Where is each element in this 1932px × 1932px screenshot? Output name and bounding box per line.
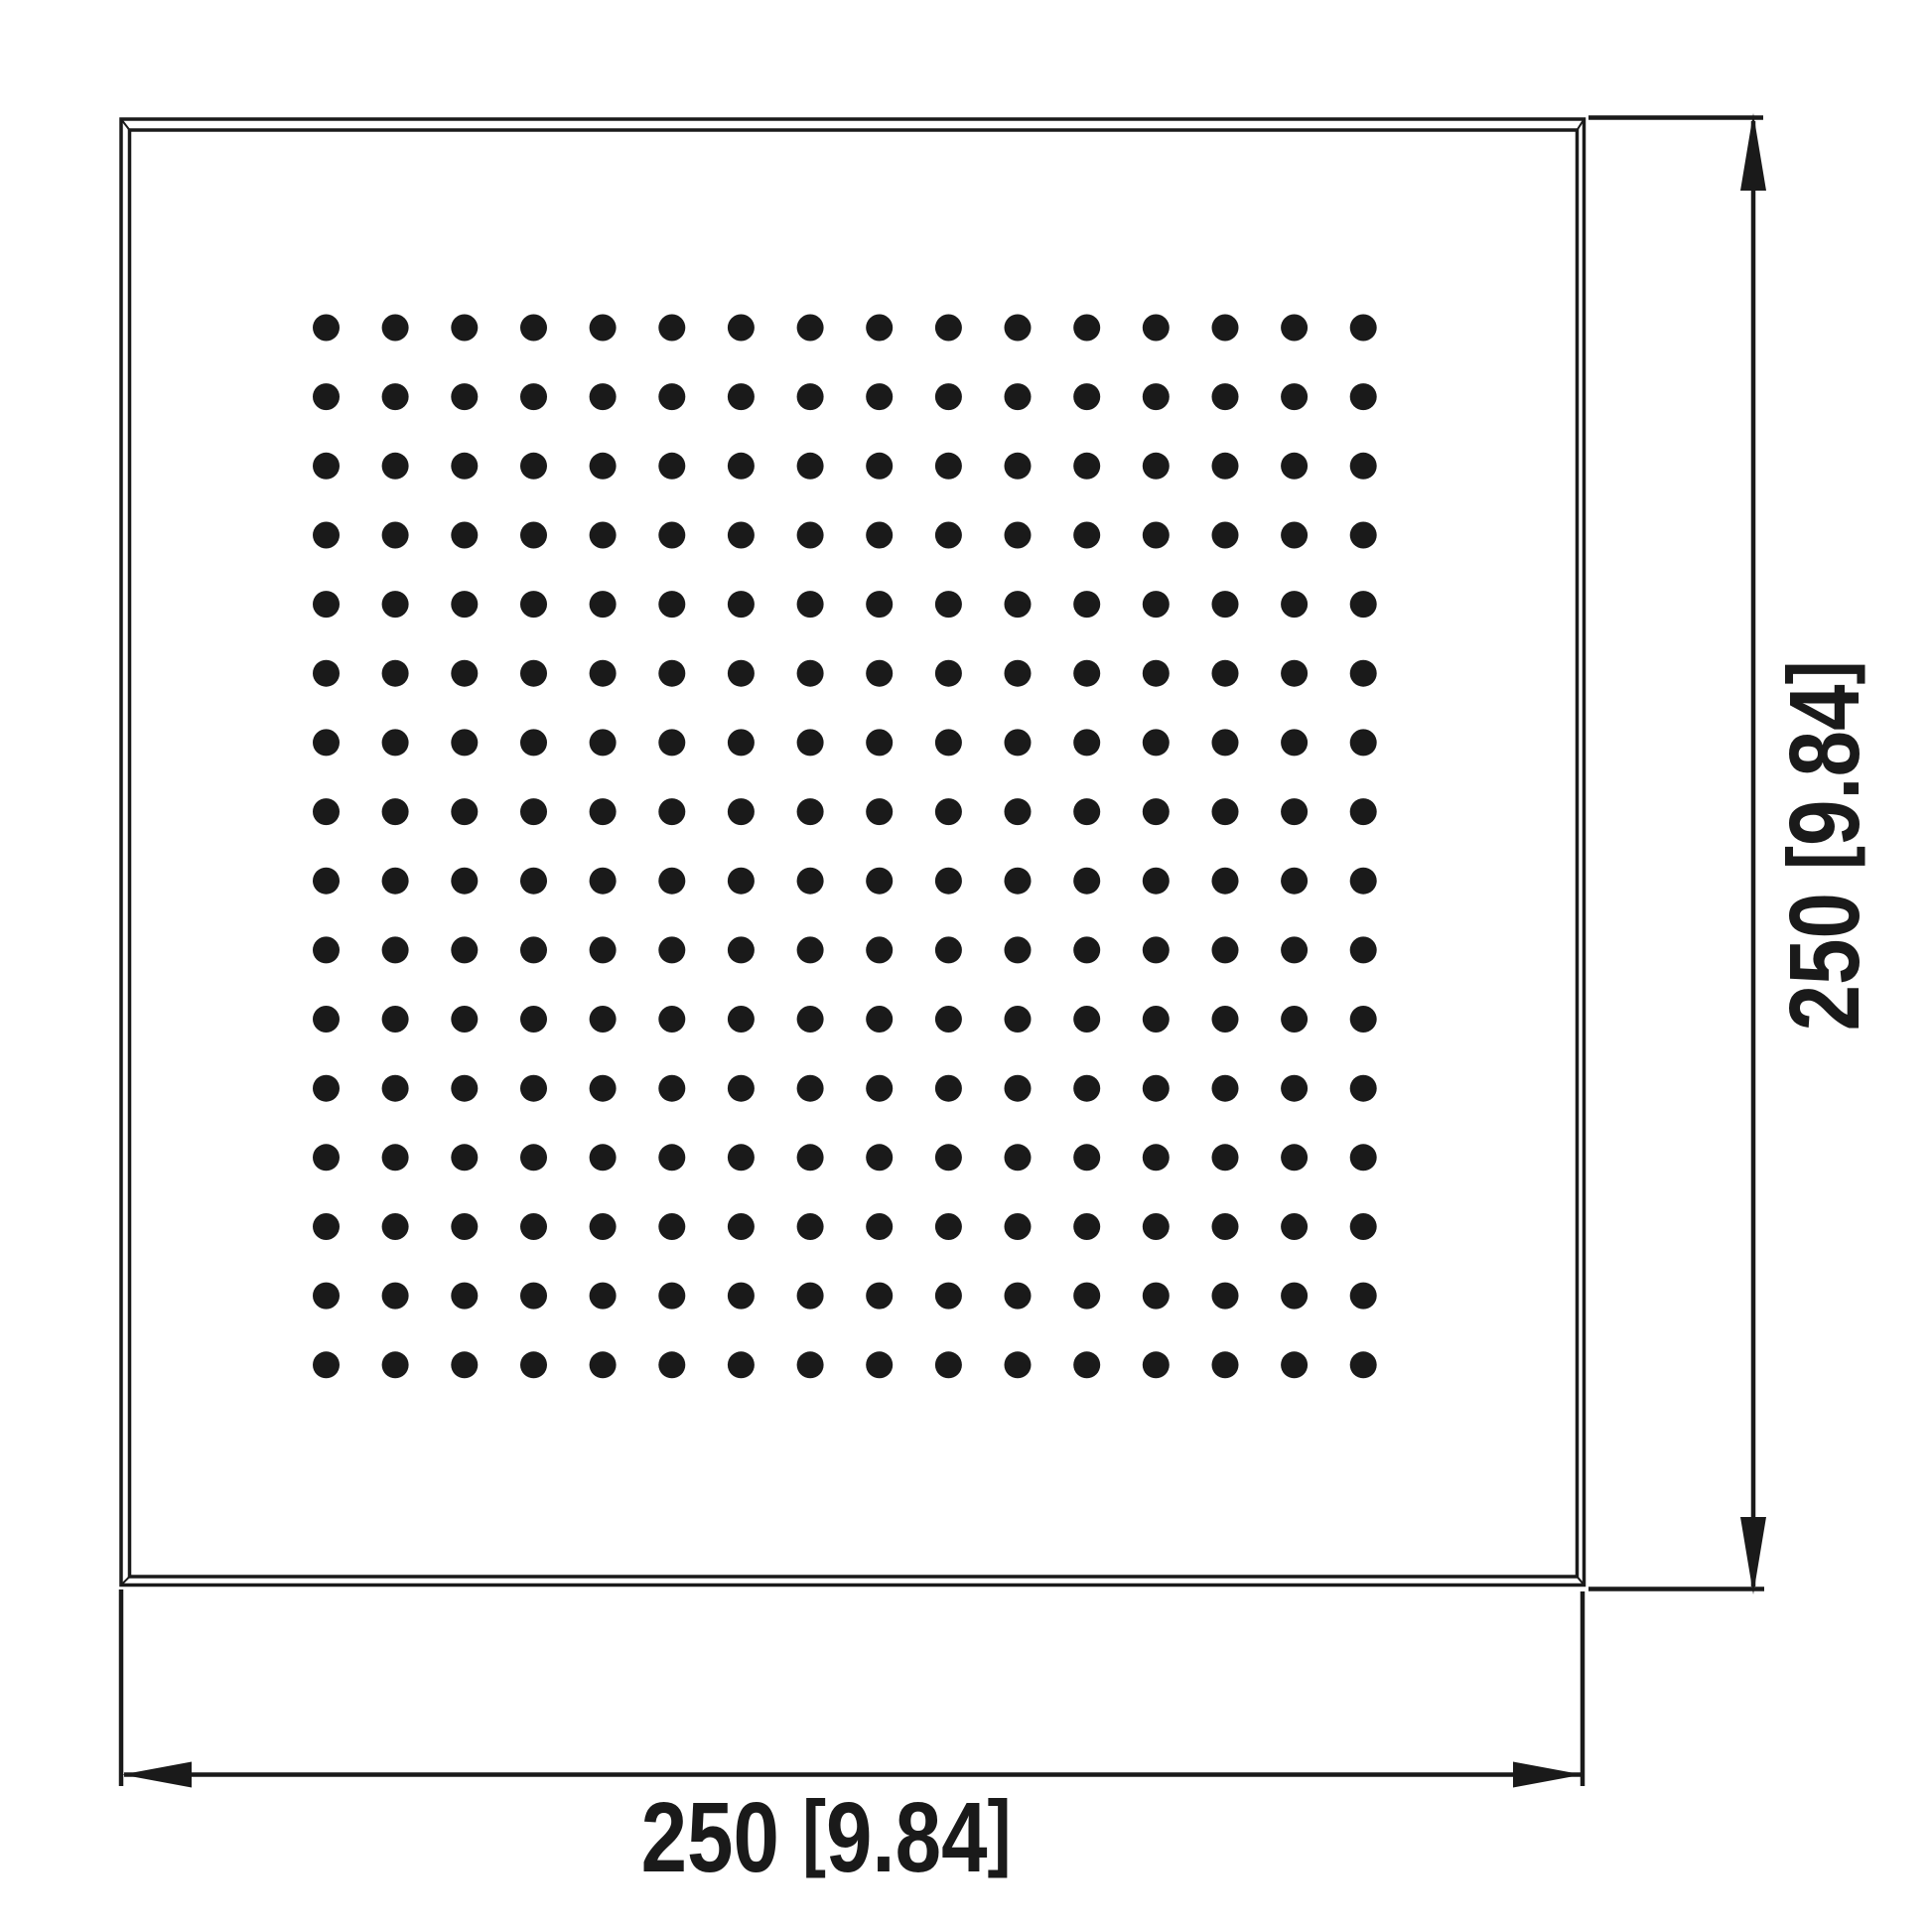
svg-text:250 [9.84]: 250 [9.84] (641, 1782, 1012, 1893)
svg-text:250 [9.84]: 250 [9.84] (1769, 661, 1880, 1032)
